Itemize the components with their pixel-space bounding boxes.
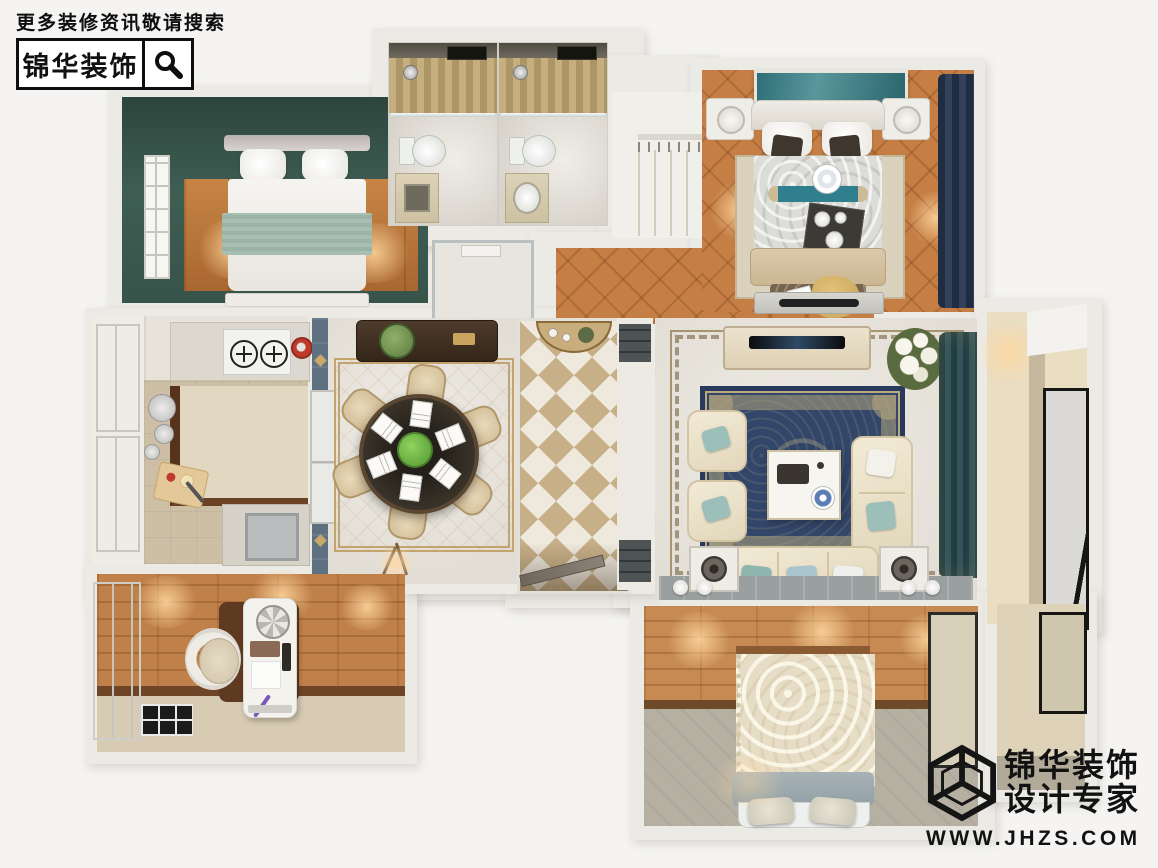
- nightstand-right: [882, 98, 930, 140]
- toilet-bowl: [522, 135, 556, 167]
- bedroom1-bed: [228, 135, 366, 307]
- knife: [185, 481, 205, 503]
- bathroom-1: [388, 42, 498, 226]
- master-bedroom: [702, 70, 974, 312]
- storage-ceiling-lamp: [461, 245, 501, 257]
- living-curtains: [939, 332, 977, 578]
- plant: [578, 327, 594, 343]
- burner: [230, 340, 258, 368]
- entry-hall: [517, 318, 631, 594]
- light-glow: [704, 756, 794, 806]
- tomato: [166, 472, 177, 483]
- brand-logo-box: 锦华装饰: [16, 38, 194, 90]
- isometric-cube-logo: [926, 744, 998, 822]
- vanity: [395, 173, 439, 223]
- place-setting: [409, 400, 432, 429]
- nightstand-left: [706, 98, 754, 140]
- kitchen-counter: [170, 322, 310, 382]
- living-room: [655, 318, 977, 600]
- teal-pillow: [700, 425, 731, 453]
- plate: [834, 211, 848, 225]
- passage: [617, 318, 653, 590]
- watermark: 锦华装饰 设计专家 WWW.JHZS.COM: [926, 744, 1154, 851]
- desk-top: [243, 598, 297, 718]
- light-glow: [664, 612, 734, 668]
- study: [97, 574, 405, 752]
- table-lamp: [893, 106, 921, 134]
- closet-interior: [638, 150, 704, 236]
- master-bed: [754, 100, 882, 286]
- kitchen-sink: [245, 513, 299, 561]
- potted-plant: [381, 325, 413, 357]
- shower-fixture: [447, 46, 487, 60]
- flower-arrangement: [887, 328, 943, 390]
- loveseat: [851, 436, 913, 556]
- armchair: [687, 410, 747, 472]
- bowl: [154, 424, 174, 444]
- bed-pillow: [302, 149, 348, 181]
- closet-hangers: [638, 142, 704, 152]
- tv-dresser: [754, 292, 884, 314]
- red-pot: [291, 337, 313, 359]
- toilet: [509, 135, 555, 165]
- burner: [260, 340, 288, 368]
- balcony-right: [987, 312, 1087, 624]
- kitchen: [92, 316, 308, 564]
- shower-fixture: [557, 46, 597, 60]
- teal-pillow: [866, 501, 897, 532]
- wall-cabinet: [619, 324, 651, 362]
- speaker: [701, 556, 727, 582]
- bathroom-2: [498, 42, 608, 226]
- desk-edge: [248, 705, 292, 713]
- cushion-divider: [827, 552, 829, 578]
- balcony-window: [96, 436, 140, 552]
- sink: [513, 182, 541, 214]
- tv-console: [723, 326, 871, 370]
- bed-pillow: [809, 796, 857, 826]
- chair-seat: [199, 638, 239, 684]
- armchair: [687, 480, 747, 542]
- bed-footboard: [225, 293, 369, 307]
- watermark-tagline: 设计专家: [1004, 783, 1140, 817]
- stand-mixer: [148, 394, 176, 422]
- place-setting: [399, 473, 422, 502]
- round-stool: [925, 580, 940, 595]
- brand-name: 锦华装饰: [19, 41, 142, 87]
- shower-head: [513, 65, 528, 80]
- watermark-text: 锦华装饰 设计专家: [1004, 749, 1140, 817]
- teal-pillow: [700, 495, 731, 523]
- magnifier-icon-svg: [153, 49, 183, 79]
- blue-plate: [811, 486, 835, 510]
- balcony-ceiling: [1027, 304, 1087, 356]
- cushion-divider: [777, 552, 779, 578]
- black-grid-mat: [141, 704, 193, 736]
- gas-cooktop: [223, 329, 291, 375]
- walk-in-closet: [612, 92, 706, 238]
- desk-pad: [250, 641, 280, 657]
- dining-cabinet: [310, 390, 336, 524]
- table-lamp: [717, 106, 745, 134]
- closet-shelf: [638, 134, 704, 140]
- bedroom1-window: [144, 155, 170, 279]
- plate: [813, 210, 831, 228]
- tray: [777, 464, 809, 484]
- bedroom-top-left: [122, 97, 428, 303]
- light-glow: [131, 576, 201, 628]
- bed-pillow: [240, 149, 286, 181]
- sink: [404, 184, 430, 212]
- shower-head: [403, 65, 418, 80]
- phone: [282, 643, 291, 671]
- watermark-website: WWW.JHZS.COM: [926, 827, 1154, 851]
- coffee-table: [767, 450, 841, 520]
- sideboard: [356, 320, 498, 362]
- watermark-brand: 锦华装饰: [1004, 749, 1140, 783]
- round-stool: [901, 580, 916, 595]
- magnifier-icon: [145, 41, 191, 87]
- console-table: [536, 321, 612, 353]
- trinket: [548, 328, 558, 338]
- trinket: [562, 333, 571, 342]
- papers: [251, 661, 281, 689]
- master-curtains: [938, 74, 974, 308]
- storage-room: [432, 240, 534, 328]
- watermark-row: 锦华装饰 设计专家: [926, 744, 1154, 822]
- bowl: [144, 444, 160, 460]
- balcony-window: [1039, 612, 1087, 714]
- cushion-divider: [859, 492, 905, 494]
- tv-flat: [779, 299, 859, 307]
- desk-fan: [256, 605, 290, 639]
- table-centerpiece-plant: [397, 432, 433, 468]
- tv: [749, 336, 845, 349]
- speaker: [891, 556, 917, 582]
- doily: [812, 164, 842, 194]
- balcony-window: [1043, 388, 1089, 630]
- white-pillow: [865, 448, 896, 478]
- round-stool: [673, 580, 688, 595]
- kitchen-balcony: [92, 316, 146, 564]
- apartment-plan: [0, 0, 1158, 868]
- floorplan-render: 更多装修资讯敬请搜索 锦华装饰 锦华装饰: [0, 0, 1158, 868]
- sink-counter: [222, 504, 310, 566]
- cup: [817, 462, 824, 469]
- balcony-window: [96, 324, 140, 432]
- bed-blanket-sage: [222, 213, 372, 255]
- toilet: [399, 135, 445, 165]
- header-tagline: 更多装修资讯敬请搜索: [16, 8, 226, 35]
- gold-trinket: [453, 333, 475, 345]
- vanity: [505, 173, 549, 223]
- wall-cabinet: [619, 540, 651, 582]
- light-glow: [337, 584, 397, 630]
- study-window: [93, 582, 141, 740]
- round-stool: [697, 580, 712, 595]
- toilet-bowl: [412, 135, 446, 167]
